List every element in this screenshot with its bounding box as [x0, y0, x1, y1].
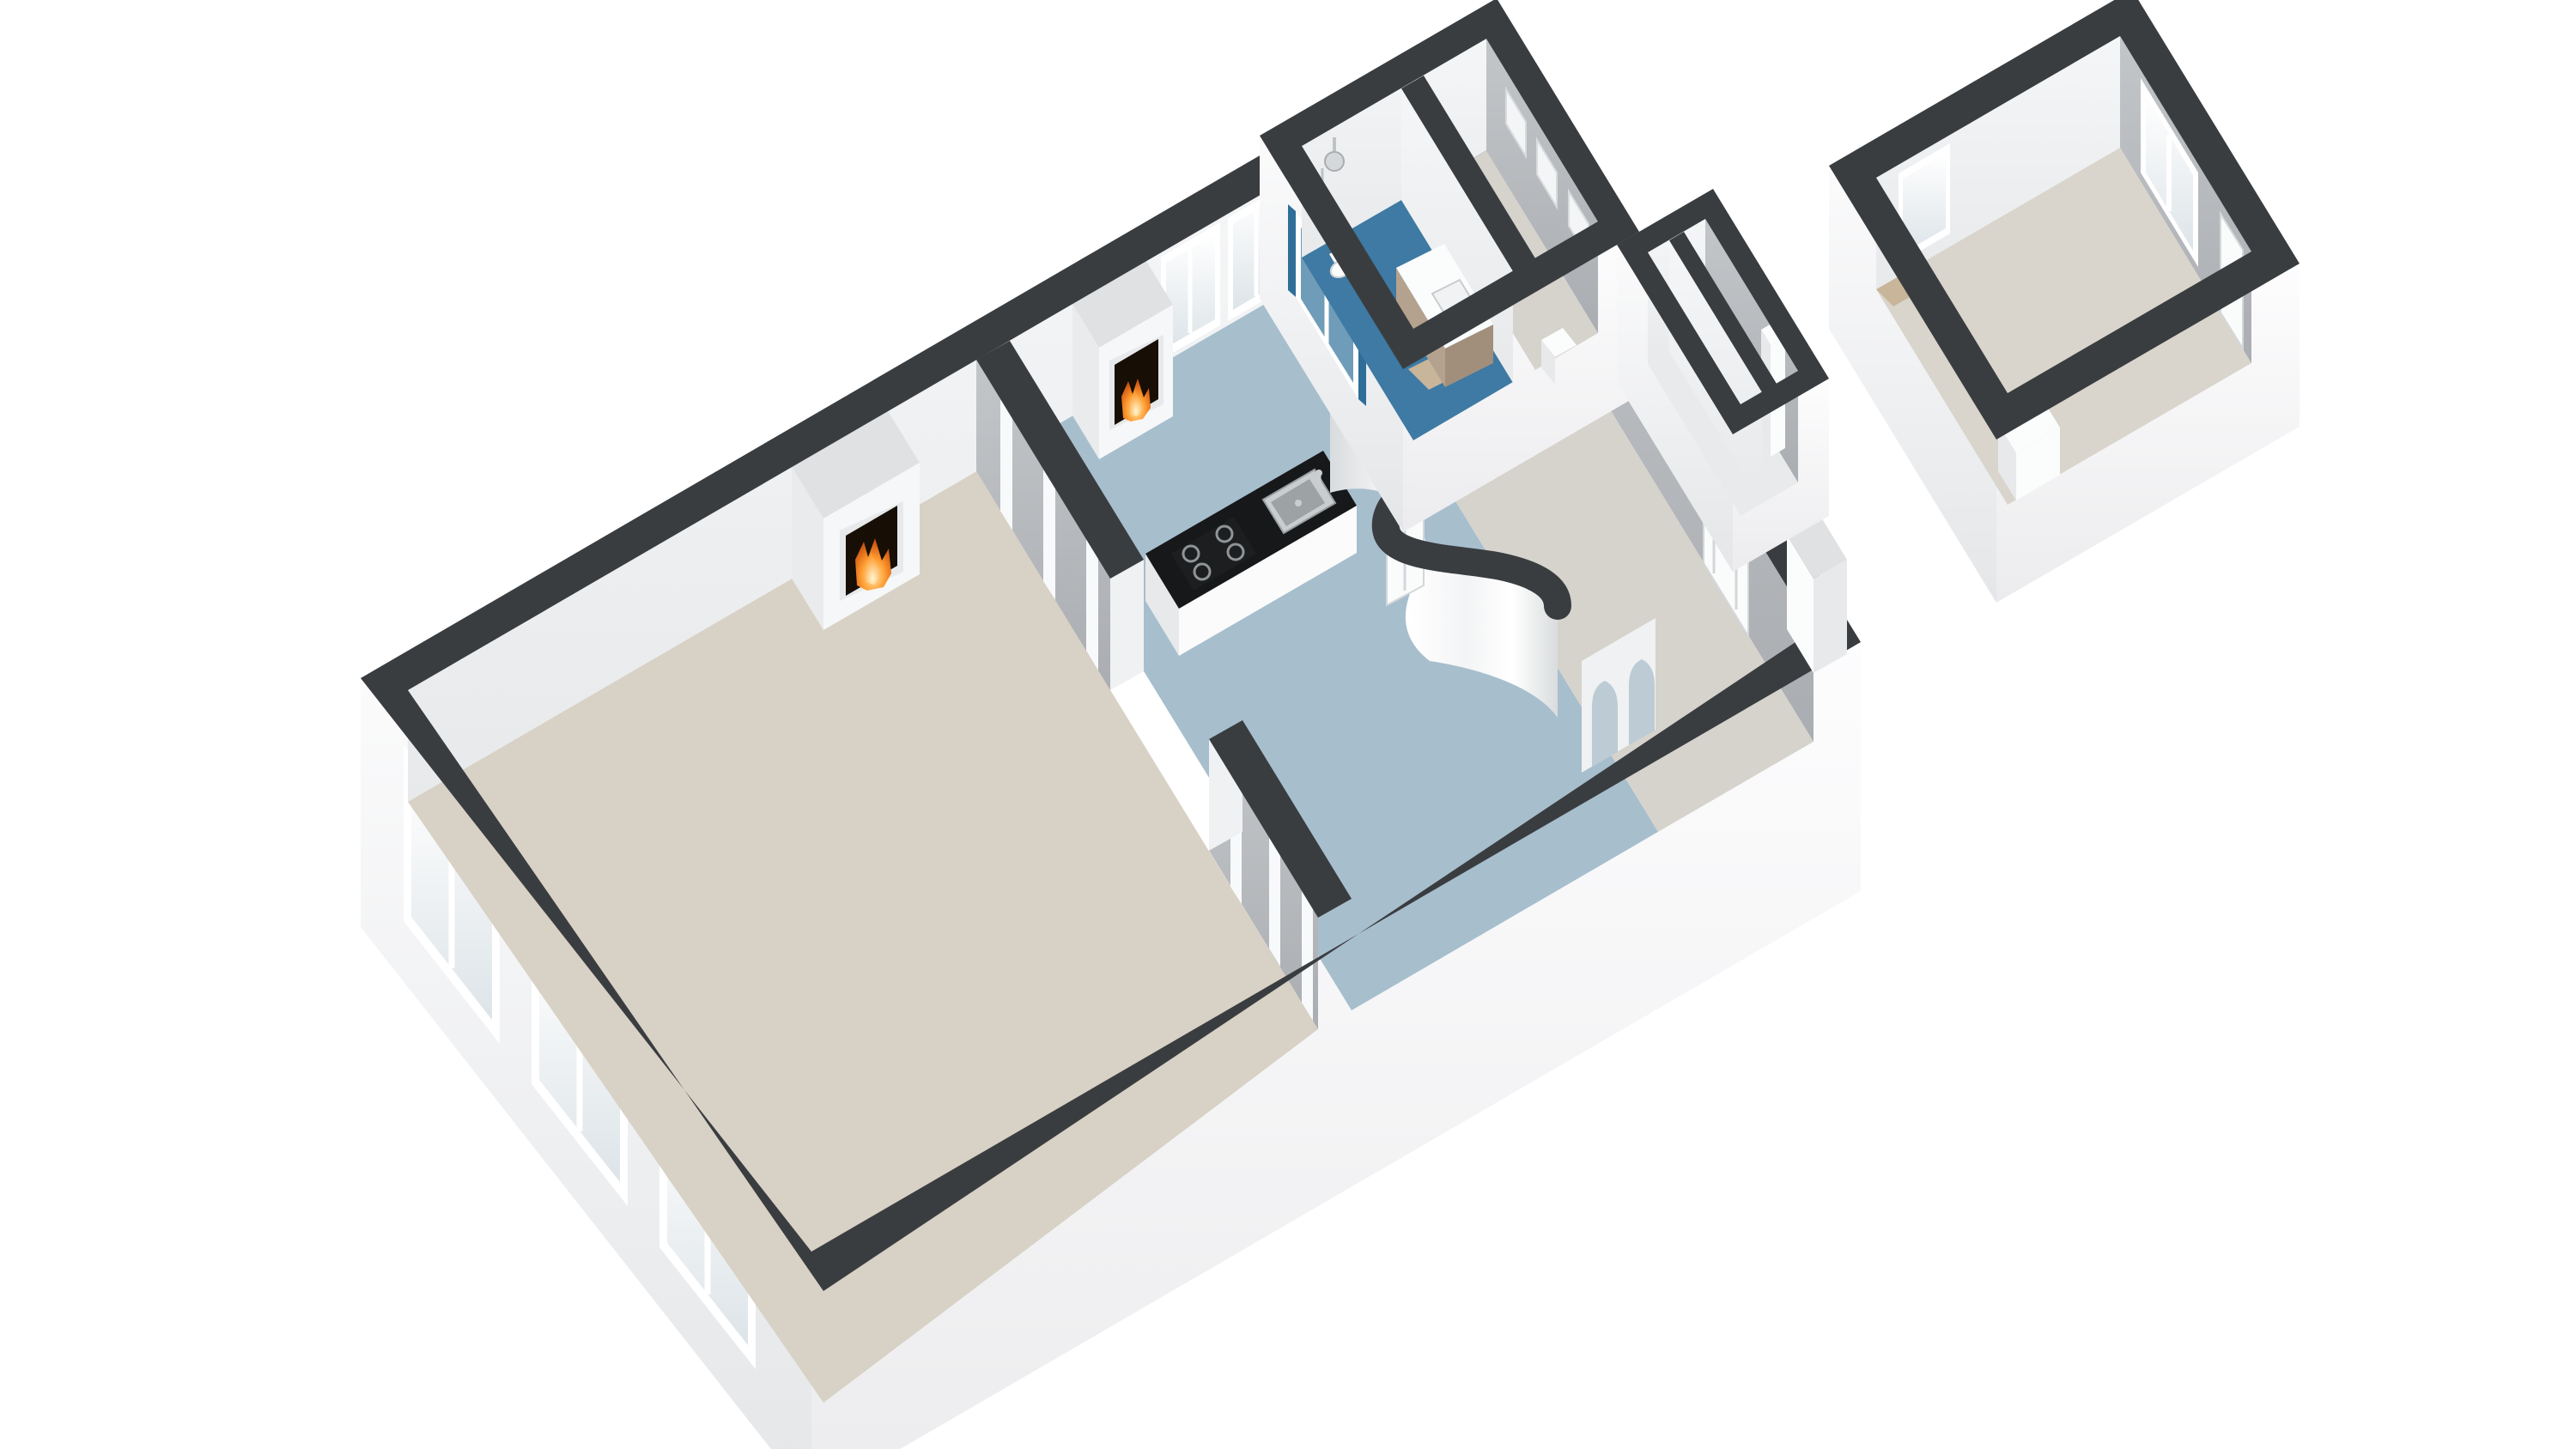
window-reveal: [1288, 204, 1296, 297]
partition-end-face: [1110, 560, 1144, 690]
pilaster: [1302, 891, 1313, 1021]
pilaster: [1269, 837, 1280, 967]
sink-drain-icon: [1295, 500, 1302, 506]
pilaster: [1000, 399, 1012, 530]
pillar-side: [1814, 560, 1847, 673]
detached-room: [1829, 0, 2300, 603]
pilaster: [1086, 539, 1098, 670]
floorplan-3d-view[interactable]: [0, 0, 2576, 1449]
pilaster: [1043, 470, 1055, 600]
faucet-head: [1315, 470, 1322, 476]
arch-opening-1: [1592, 681, 1618, 767]
shower-rose-icon: [1325, 152, 1344, 171]
floorplan-canvas: [0, 0, 2576, 1449]
arch-opening-2: [1629, 659, 1655, 745]
